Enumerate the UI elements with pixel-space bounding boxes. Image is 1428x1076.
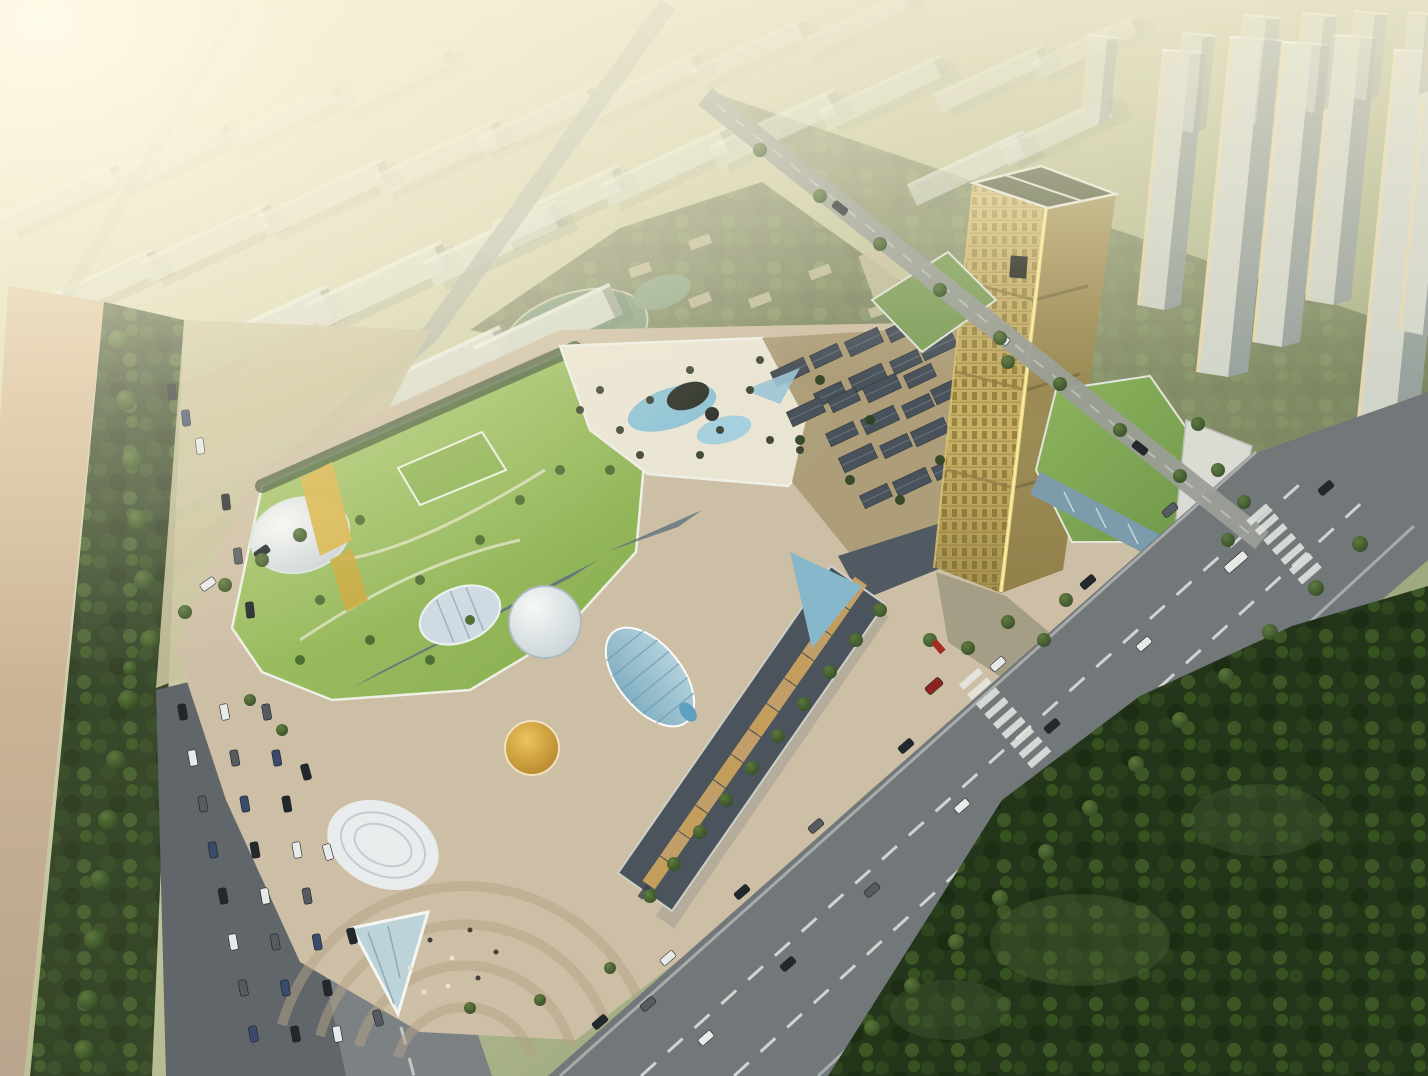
aerial-rendering [0, 0, 1428, 1076]
sun-glare [0, 0, 1428, 1076]
scene-canvas [0, 0, 1428, 1076]
